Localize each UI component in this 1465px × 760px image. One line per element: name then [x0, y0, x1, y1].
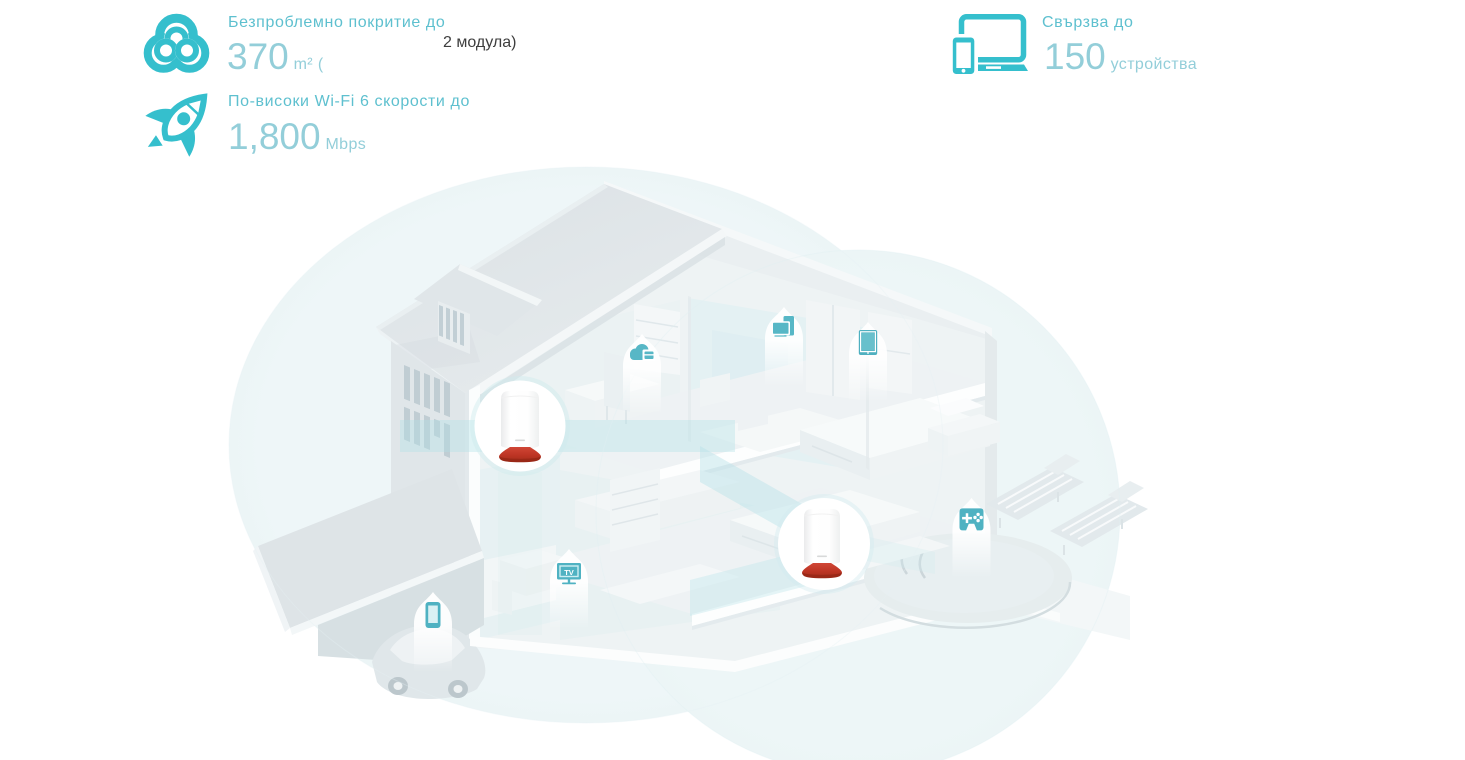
svg-text:TV: TV [564, 568, 574, 577]
